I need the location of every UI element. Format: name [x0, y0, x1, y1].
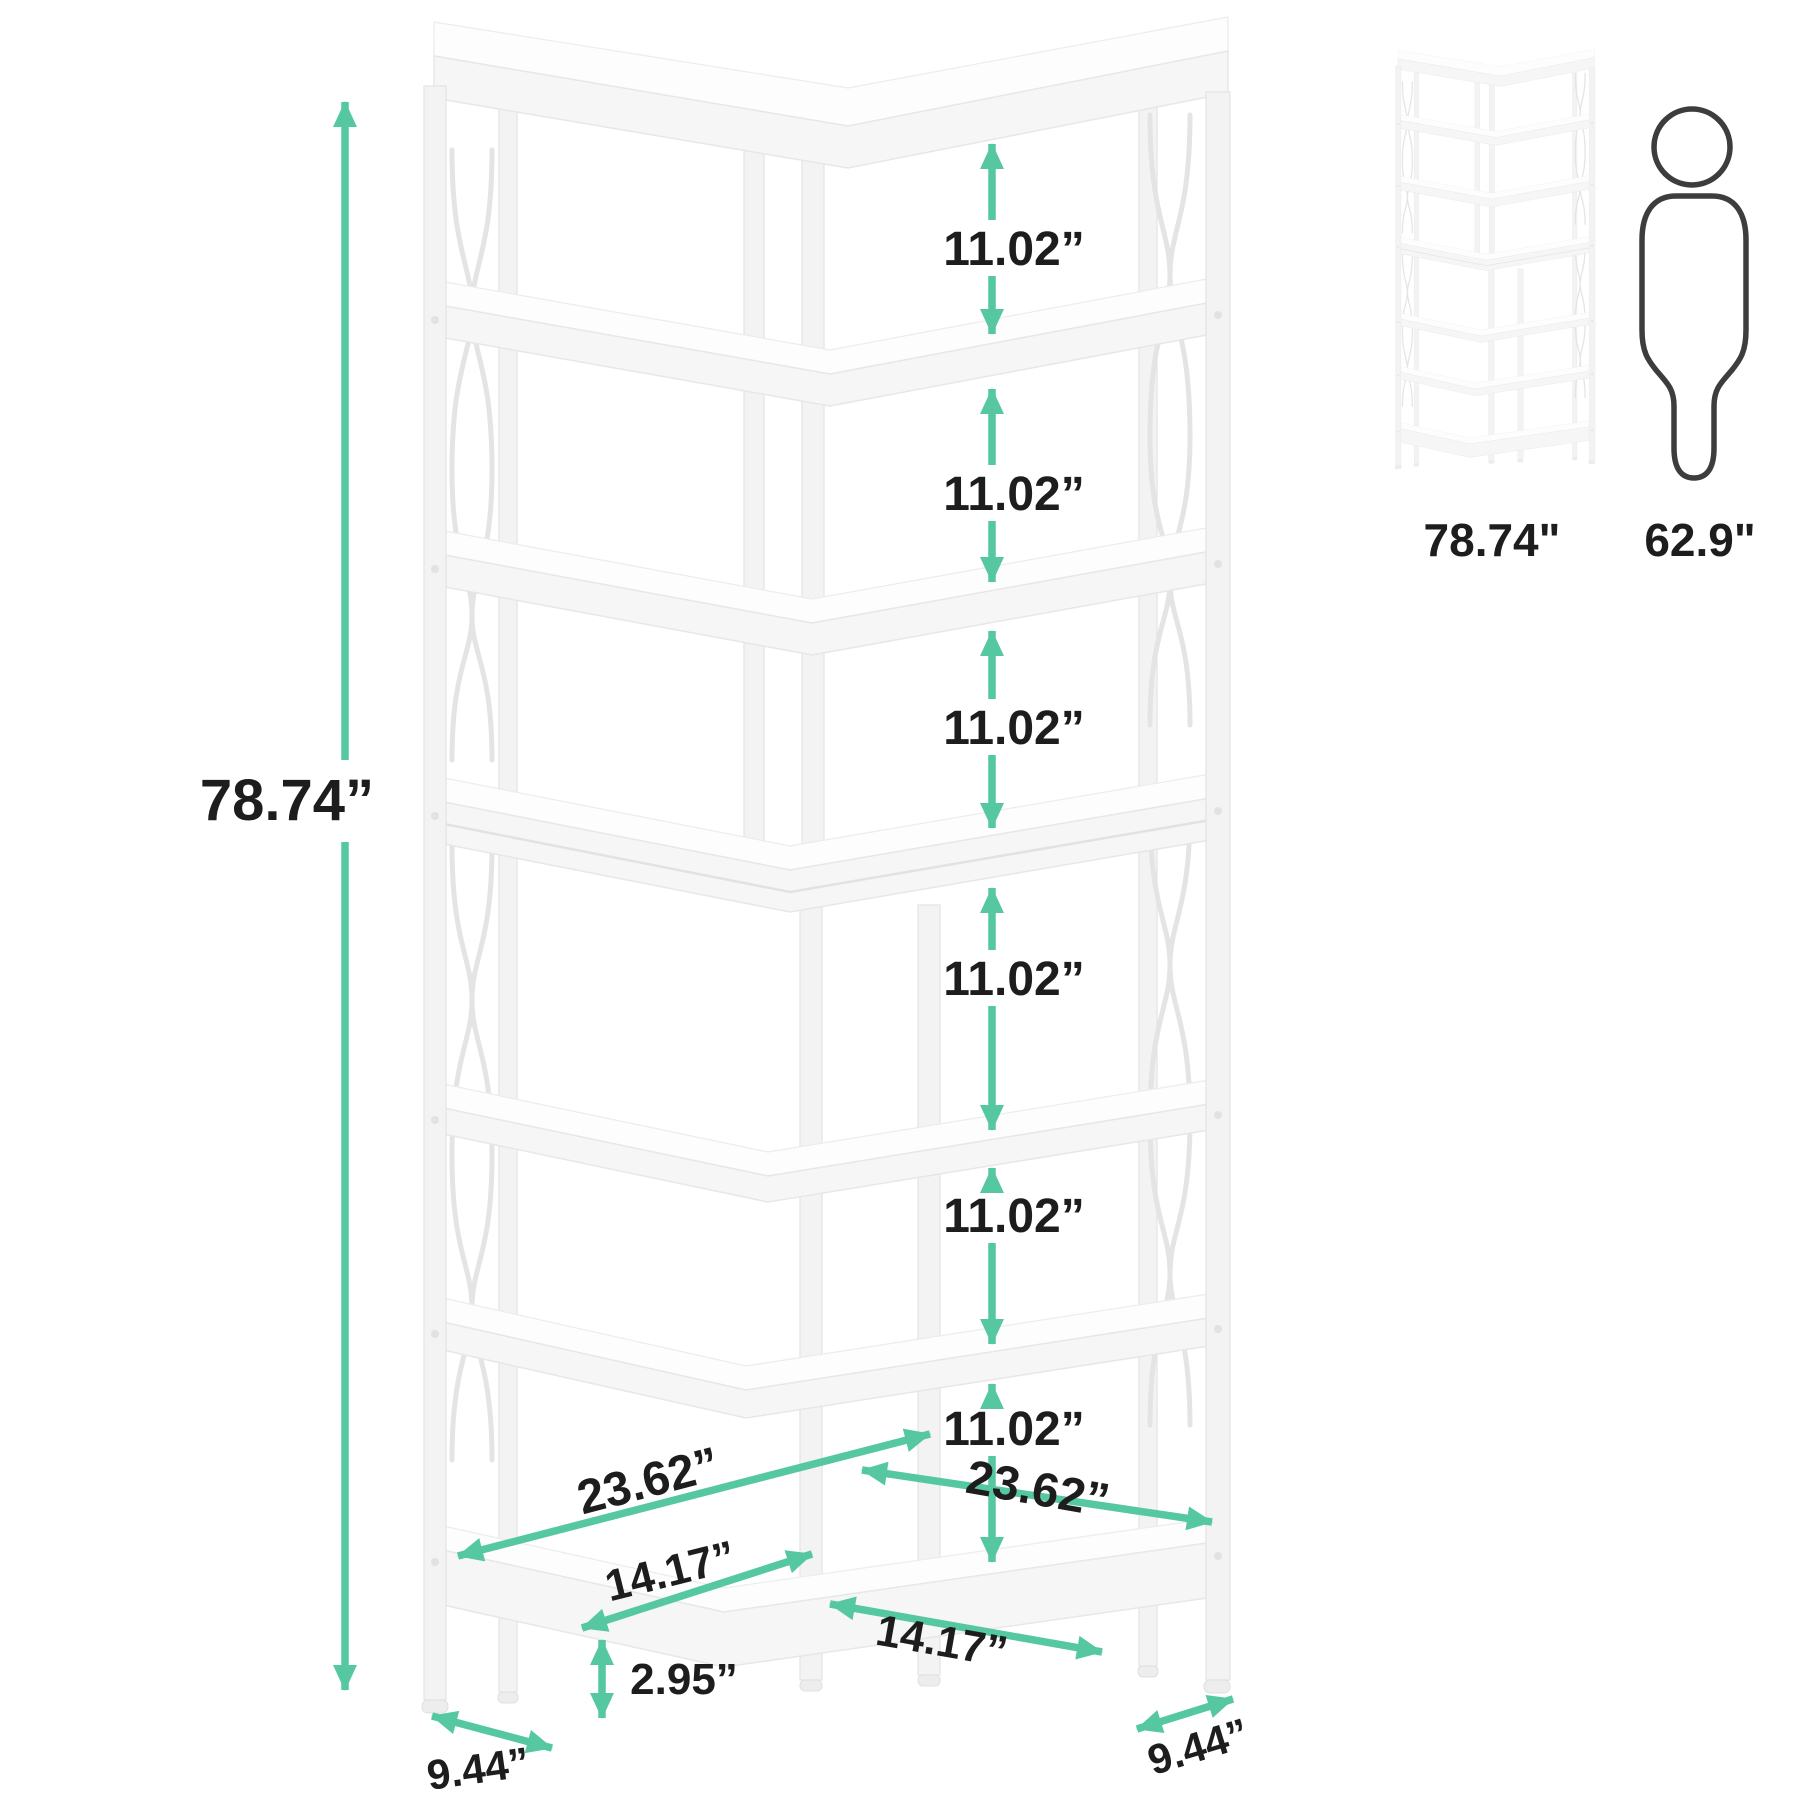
diagram-svg: 78.74” 11.02” 11.02” 11.02” 11.02” 11.02… — [0, 0, 1800, 1800]
side-depth-dimension-right: 9.44” — [1137, 1699, 1254, 1784]
shelf-board-5 — [434, 1077, 1228, 1202]
right-back-foot — [1138, 1666, 1158, 1677]
width-dimension-right: 23.62” — [862, 1451, 1212, 1528]
shelf-board-6 — [434, 1291, 1228, 1418]
height-label: 78.74” — [200, 768, 374, 833]
side-depth-dimension-left: 9.44” — [424, 1716, 552, 1799]
mini-shelf-height-label: 78.74" — [1424, 514, 1561, 566]
gap-dimension-4: 11.02” — [943, 888, 1084, 1130]
person-icon — [1642, 109, 1746, 478]
corner-post-lower-a — [800, 905, 822, 1680]
corner-foot-a — [800, 1680, 822, 1691]
gap4-label: 11.02” — [943, 953, 1084, 1006]
gap2-label: 11.02” — [943, 468, 1084, 521]
width-right-label: 23.62” — [962, 1451, 1113, 1528]
mini-bookshelf — [1395, 49, 1595, 469]
right-front-post — [1206, 92, 1230, 1680]
left-back-foot — [498, 1692, 518, 1703]
gap1-label: 11.02” — [943, 223, 1084, 276]
width-left-label: 23.62” — [572, 1438, 725, 1525]
top-board — [434, 17, 1228, 168]
gap3-label: 11.02” — [943, 702, 1084, 755]
gap5-label: 11.02” — [943, 1190, 1084, 1243]
bottom-board — [434, 1516, 1228, 1667]
gap-dimension-3: 11.02” — [943, 631, 1084, 828]
corner-shelf-board — [434, 771, 1228, 912]
height-dimension: 78.74” — [200, 102, 374, 1690]
left-front-post — [424, 86, 446, 1700]
right-front-foot — [1204, 1680, 1230, 1693]
gap6-label: 11.02” — [943, 1403, 1084, 1456]
shelf-board-3 — [434, 524, 1228, 655]
corner-post-upper-a — [744, 150, 764, 870]
side-depth-left-label: 9.44” — [424, 1738, 532, 1799]
person-height-label: 62.9" — [1644, 514, 1755, 566]
product-dimension-diagram: 78.74” 11.02” 11.02” 11.02” 11.02” 11.02… — [0, 0, 1800, 1800]
comparison-panel: 78.74" 62.9" — [1395, 49, 1756, 566]
left-front-foot — [422, 1700, 448, 1713]
shelf-board-2 — [434, 275, 1228, 406]
base-height-label: 2.95” — [630, 1655, 738, 1704]
corner-post-upper-b — [802, 140, 824, 870]
width-dimension-left: 23.62” — [458, 1434, 930, 1556]
corner-foot-b — [918, 1675, 940, 1686]
